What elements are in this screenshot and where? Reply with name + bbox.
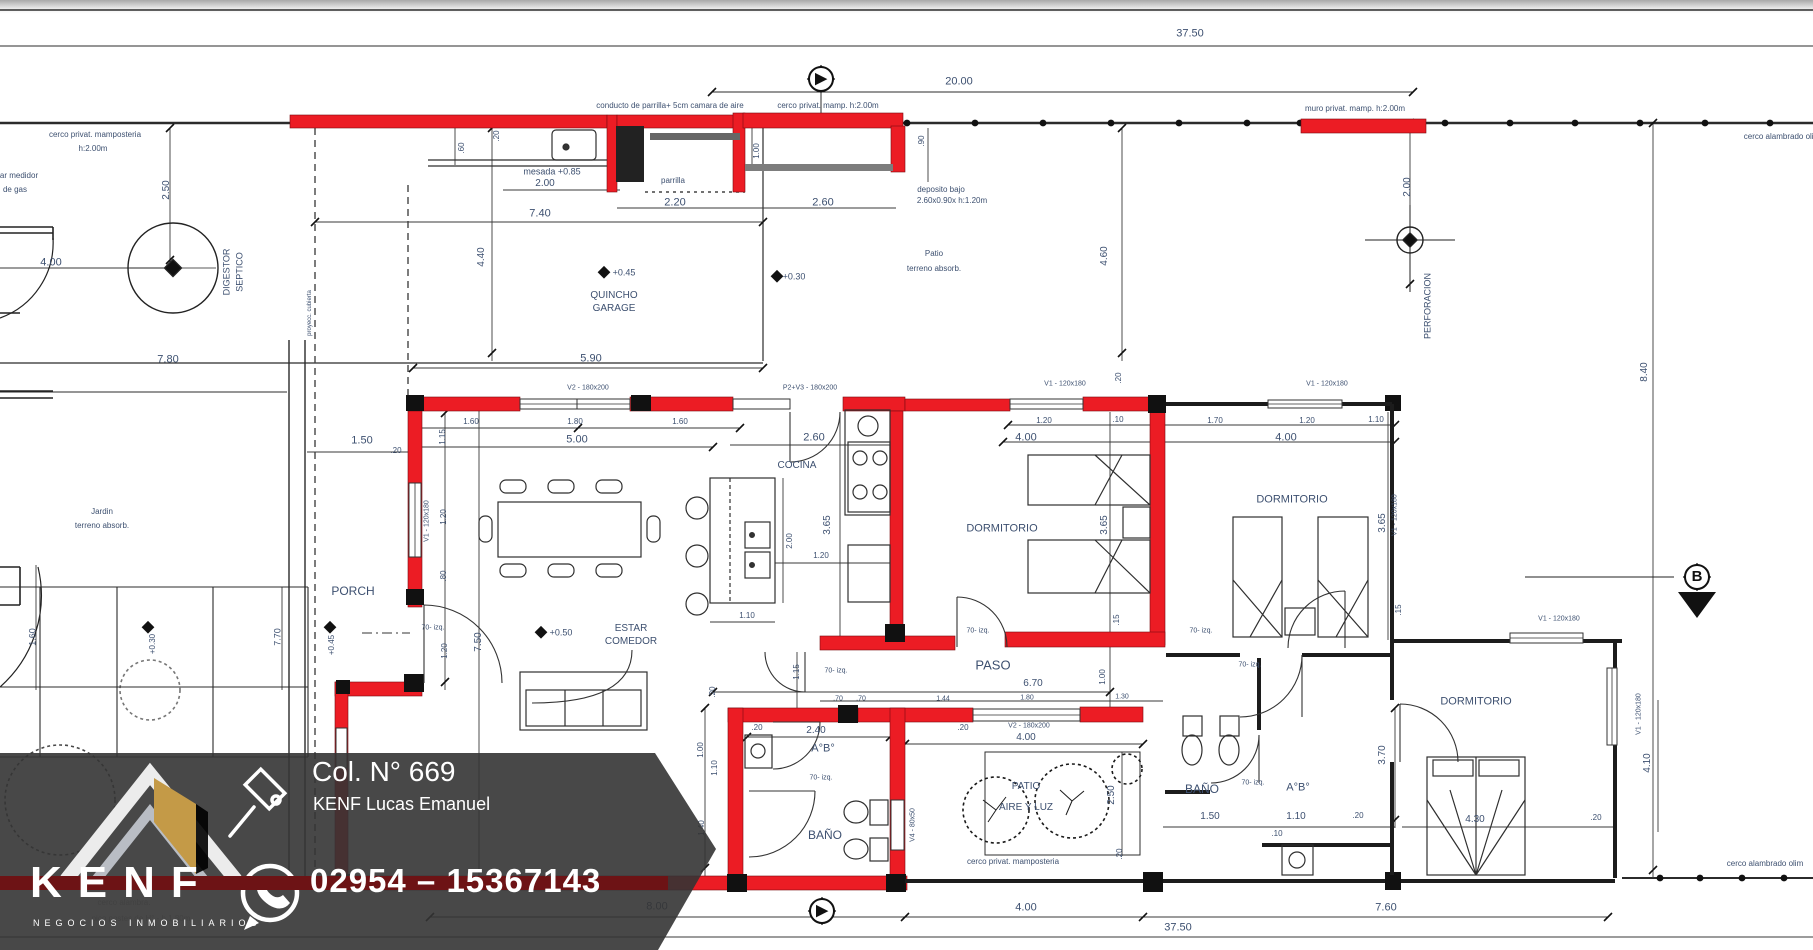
patio-floor (985, 752, 1140, 855)
brand-name: KENF (30, 858, 214, 908)
fence-posts (904, 120, 1788, 882)
washer (1282, 845, 1313, 875)
level-markers (142, 266, 784, 639)
bidet (844, 839, 868, 859)
agency-watermark-banner: KENF NEGOCIOS INMOBILIARIOS Col. N° 669 … (0, 750, 730, 950)
grill-band (650, 133, 740, 140)
floor-plan-canvas: 37.5020.00cerco privat. mamposteriah:2.0… (0, 0, 1813, 950)
digestor-septico-symbol (128, 223, 218, 313)
stool (686, 545, 708, 567)
perforacion-symbol (1365, 205, 1455, 292)
bed (1233, 517, 1282, 637)
cabinet (520, 672, 647, 730)
kitchen-counter (845, 410, 890, 515)
stool (686, 497, 708, 519)
nightstand (1285, 608, 1315, 635)
kitchen-sink (858, 416, 878, 436)
bed (1028, 455, 1150, 505)
brand-tagline: NEGOCIOS INMOBILIARIOS (33, 918, 262, 928)
deposito-counter (745, 164, 893, 171)
tree-branches (983, 790, 1084, 822)
b-marker-triangle (1678, 592, 1716, 618)
quincho-sink (552, 130, 596, 160)
toilet-tank (870, 800, 888, 825)
section-marker-A-bottom: ▶ (805, 894, 839, 928)
bidet-back (870, 838, 888, 861)
left-building-walls (0, 227, 53, 687)
driveway-slabs (0, 587, 308, 757)
bidet-back (1220, 716, 1239, 736)
bed (1318, 517, 1368, 637)
bidet (1219, 735, 1239, 765)
bed (1028, 540, 1150, 593)
section-marker-B-right: B (1680, 560, 1714, 594)
toilet (1182, 735, 1202, 765)
toilet (844, 801, 868, 823)
kitchen-island (710, 478, 775, 603)
nightstand (1123, 507, 1150, 538)
fridge (848, 545, 890, 602)
agent-name: KENF Lucas Emanuel (313, 794, 490, 815)
stool (686, 593, 708, 615)
toilet-tank (1183, 716, 1202, 736)
section-marker-A-top: ▶ (804, 62, 838, 96)
agent-license-number: Col. N° 669 (312, 756, 456, 788)
bathroom-sink (745, 735, 772, 768)
agent-phone-number: 02954 – 15367143 (310, 862, 601, 900)
dining-table (498, 502, 641, 557)
